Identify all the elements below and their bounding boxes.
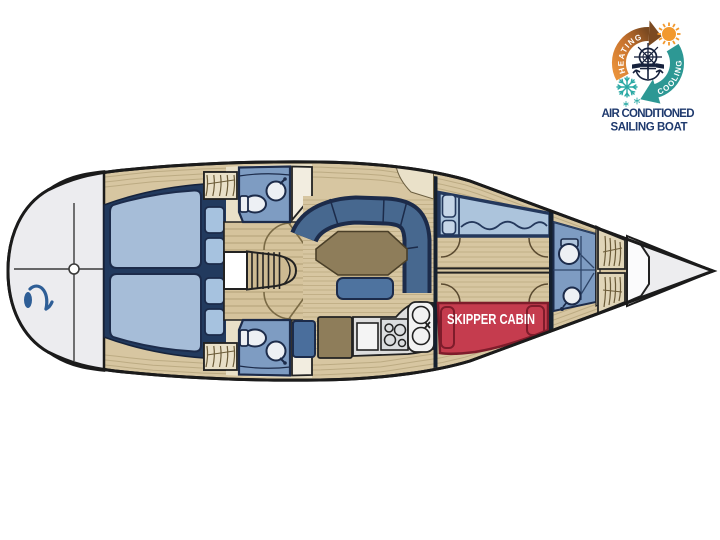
svg-text:SAILING BOAT: SAILING BOAT [611, 122, 688, 134]
svg-text:SKIPPER CABIN: SKIPPER CABIN [447, 311, 535, 328]
svg-text:AIR CONDITIONED: AIR CONDITIONED [602, 108, 695, 120]
